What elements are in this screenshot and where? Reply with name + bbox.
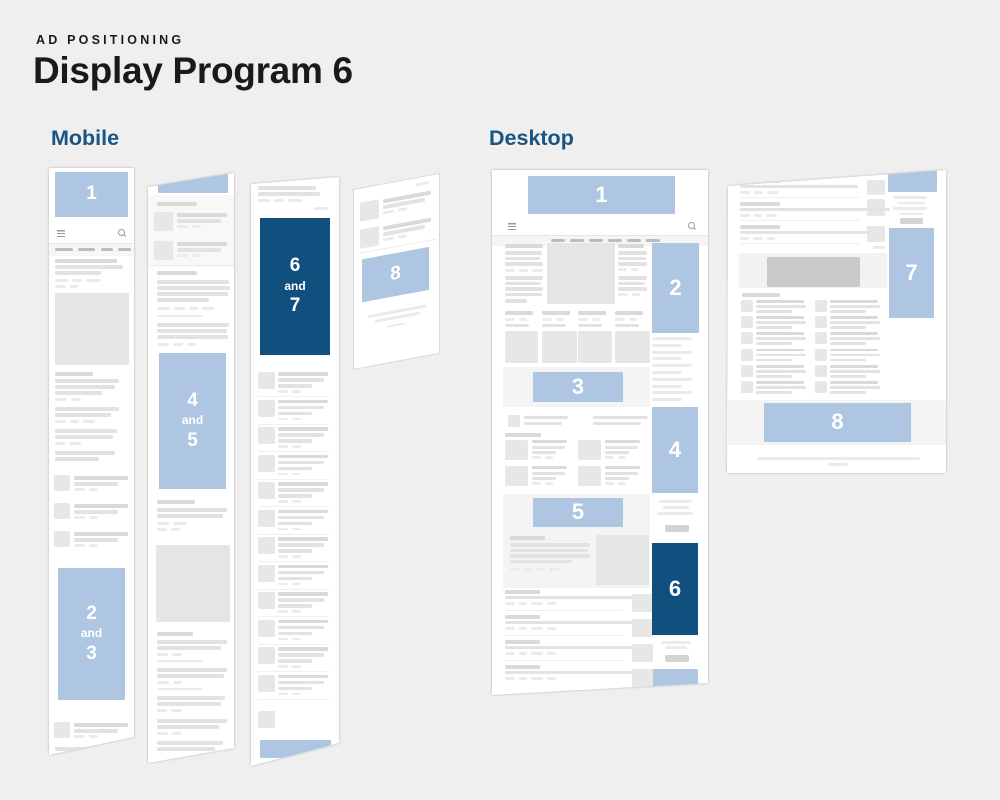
divider: [505, 635, 623, 636]
ad-number: 4: [187, 389, 198, 414]
placeholder-image: [741, 300, 753, 312]
placeholder-image: [741, 349, 753, 361]
skeleton-bar: [753, 237, 763, 240]
skeleton-bar: [171, 709, 182, 712]
placeholder-image: [632, 644, 653, 662]
placeholder-image: [258, 711, 275, 728]
skeleton-bar: [173, 681, 182, 684]
skeleton-bar: [278, 555, 288, 558]
skeleton-bar: [531, 677, 543, 680]
skeleton-bar: [593, 416, 648, 419]
skeleton-bar: [756, 310, 792, 313]
placeholder-image: [258, 537, 275, 554]
search-handle: [123, 234, 126, 237]
skeleton-bar: [652, 357, 682, 360]
divider: [258, 589, 330, 590]
skeleton-bar: [893, 196, 927, 199]
skeleton-bar: [754, 214, 762, 217]
skeleton-bar: [157, 681, 169, 684]
skeleton-bar: [652, 337, 692, 340]
skeleton-bar: [74, 510, 118, 514]
button-placeholder: [665, 655, 689, 662]
skeleton-bar: [314, 207, 328, 210]
skeleton-bar: [157, 522, 169, 525]
placeholder-image: [258, 372, 275, 389]
skeleton-bar: [830, 359, 866, 362]
skeleton-bar: [532, 472, 565, 475]
skeleton-bar: [510, 543, 590, 547]
placeholder-image: [258, 455, 275, 472]
skeleton-bar: [55, 407, 119, 411]
skeleton-bar: [55, 285, 66, 288]
skeleton-bar: [177, 213, 227, 217]
placeholder-image: [154, 212, 173, 231]
ad-slot-mobile-2-3: 2 and 3: [58, 568, 125, 700]
ad-slot-desktop-5: 5: [533, 498, 623, 527]
skeleton-bar: [55, 398, 67, 401]
divider: [505, 660, 623, 661]
skeleton-bar: [89, 544, 98, 547]
skeleton-bar: [531, 602, 543, 605]
skeleton-bar: [505, 590, 540, 594]
skeleton-bar: [157, 343, 169, 346]
skeleton-bar: [74, 544, 85, 547]
skeleton-bar: [157, 298, 209, 302]
skeleton-bar: [618, 244, 644, 248]
skeleton-bar: [278, 665, 288, 668]
skeleton-bar: [756, 342, 792, 345]
ad-slot-desktop-2: 2: [652, 243, 699, 333]
skeleton-bar: [89, 488, 98, 491]
skeleton-bar: [278, 675, 328, 679]
skeleton-bar: [652, 385, 682, 388]
skeleton-bar: [187, 343, 196, 346]
skeleton-bar: [157, 741, 223, 745]
divider: [258, 644, 330, 645]
skeleton-bar: [505, 640, 540, 644]
skeleton-bar: [756, 300, 804, 303]
ad-slot-mobile-1: 1: [55, 172, 128, 217]
placeholder-image: [542, 331, 577, 363]
skeleton-bar: [899, 213, 923, 216]
ad-number: 2: [669, 274, 681, 303]
ad-number: 6: [669, 575, 681, 604]
skeleton-bar: [547, 652, 556, 655]
skeleton-bar: [652, 344, 682, 347]
skeleton-bar: [278, 384, 312, 388]
skeleton-bar: [398, 234, 407, 238]
skeleton-bar: [615, 318, 625, 321]
skeleton-bar: [618, 287, 647, 291]
tab-dash: [55, 248, 73, 251]
skeleton-bar: [652, 351, 692, 354]
ad-positioning-diagram: AD POSITIONING Display Program 6 Mobile …: [0, 0, 1000, 800]
placeholder-image: [505, 331, 538, 363]
skeleton-bar: [292, 445, 301, 448]
skeleton-bar: [74, 516, 85, 519]
ad-number: 2: [86, 602, 97, 627]
skeleton-bar: [55, 451, 115, 455]
skeleton-bar: [505, 287, 543, 291]
divider: [258, 479, 330, 480]
skeleton-bar: [292, 610, 301, 613]
skeleton-bar: [756, 316, 804, 319]
skeleton-bar: [740, 202, 780, 206]
skeleton-bar: [593, 422, 641, 425]
skeleton-bar: [157, 632, 193, 636]
ad-slot-partial: [888, 169, 937, 192]
mobile-screen-2: 4 and 5: [147, 171, 235, 764]
skeleton-bar: [756, 354, 806, 357]
ad-number: 8: [390, 261, 401, 288]
skeleton-bar: [157, 528, 167, 531]
skeleton-bar: [505, 251, 542, 255]
skeleton-bar: [756, 349, 804, 352]
placeholder-image: [258, 647, 275, 664]
skeleton-bar: [278, 626, 324, 630]
skeleton-bar: [830, 381, 878, 384]
skeleton-bar: [505, 627, 515, 630]
skeleton-bar: [505, 596, 633, 599]
skeleton-bar: [652, 371, 682, 374]
skeleton-bar: [605, 451, 629, 454]
skeleton-bar: [292, 418, 301, 421]
skeleton-bar: [55, 265, 123, 269]
skeleton-bar: [756, 326, 792, 329]
skeleton-bar: [510, 568, 520, 571]
ad-number: and: [284, 279, 305, 295]
ad-slot-partial: [260, 740, 331, 758]
desktop-screen-2-wrap: 7 8: [726, 169, 947, 474]
skeleton-bar: [55, 435, 113, 439]
skeleton-bar: [157, 653, 168, 656]
skeleton-bar: [278, 406, 324, 410]
skeleton-bar: [542, 318, 552, 321]
skeleton-bar: [177, 254, 188, 257]
skeleton-bar: [55, 420, 66, 423]
skeleton-bar: [505, 433, 541, 437]
skeleton-bar: [157, 732, 168, 735]
skeleton-bar: [618, 257, 646, 261]
skeleton-bar: [615, 311, 643, 315]
skeleton-bar: [740, 185, 858, 188]
skeleton-bar: [830, 349, 878, 352]
ad-number: 3: [572, 373, 584, 402]
placeholder-image: [741, 381, 753, 393]
ad-slot-partial: [652, 669, 698, 695]
ad-number: and: [81, 626, 102, 642]
skeleton-bar: [278, 473, 288, 476]
skeleton-bar: [157, 688, 203, 690]
skeleton-bar: [756, 321, 806, 324]
divider: [258, 506, 330, 507]
divider: [505, 610, 623, 611]
skeleton-bar: [505, 282, 541, 286]
skeleton-bar: [157, 307, 170, 310]
skeleton-bar: [278, 537, 328, 541]
skeleton-bar: [55, 457, 99, 461]
skeleton-bar: [756, 386, 806, 389]
skeleton-bar: [830, 365, 878, 368]
skeleton-bar: [510, 549, 588, 553]
skeleton-bar: [505, 602, 515, 605]
ad-number: 8: [831, 408, 843, 437]
ad-slot-partial: [158, 171, 228, 193]
skeleton-bar: [830, 386, 880, 389]
skeleton-bar: [578, 324, 602, 327]
skeleton-bar: [55, 259, 117, 263]
divider: [258, 396, 330, 397]
mobile-screen-2-wrap: 4 and 5: [147, 171, 235, 764]
skeleton-bar: [157, 335, 228, 339]
skeleton-bar: [172, 653, 182, 656]
skeleton-bar: [663, 506, 689, 509]
skeleton-bar: [652, 398, 682, 401]
skeleton-bar: [657, 512, 693, 515]
skeleton-bar: [828, 463, 848, 466]
tab-dash: [627, 239, 641, 242]
skeleton-bar: [618, 251, 647, 255]
skeleton-bar: [157, 323, 229, 327]
skeleton-bar: [532, 456, 541, 459]
skeleton-bar: [510, 560, 572, 564]
skeleton-bar: [278, 412, 312, 416]
skeleton-bar: [278, 427, 328, 431]
skeleton-bar: [592, 318, 600, 321]
skeleton-bar: [278, 687, 312, 691]
skeleton-bar: [505, 621, 633, 624]
placeholder-image: [505, 466, 528, 486]
search-icon: [118, 229, 127, 238]
placeholder-image: [55, 293, 129, 365]
placeholder-image: [54, 475, 70, 491]
skeleton-bar: [157, 514, 223, 518]
skeleton-bar: [830, 370, 880, 373]
divider: [258, 424, 330, 425]
kicker: AD POSITIONING: [36, 33, 184, 47]
skeleton-bar: [74, 729, 118, 733]
tab-dash: [570, 239, 584, 242]
divider: [740, 243, 860, 244]
skeleton-bar: [618, 456, 626, 459]
skeleton-bar: [55, 413, 111, 417]
ad-slot-desktop-7: 7: [889, 228, 934, 318]
divider: [740, 197, 860, 198]
skeleton-bar: [278, 372, 328, 376]
skeleton-bar: [278, 378, 324, 382]
skeleton-bar: [756, 375, 792, 378]
skeleton-bar: [578, 311, 606, 315]
divider: [258, 534, 330, 535]
skeleton-bar: [55, 372, 93, 376]
skeleton-bar: [830, 337, 880, 340]
skeleton-bar: [754, 191, 763, 194]
skeleton-bar: [278, 516, 324, 520]
skeleton-bar: [632, 293, 640, 296]
skeleton-bar: [652, 391, 692, 394]
skeleton-bar: [665, 646, 687, 649]
placeholder-image: [815, 332, 827, 344]
skeleton-bar: [524, 422, 562, 425]
skeleton-bar: [505, 677, 515, 680]
placeholder-image: [632, 669, 653, 687]
skeleton-bar: [830, 321, 880, 324]
skeleton-bar: [756, 365, 804, 368]
placeholder-image: [258, 482, 275, 499]
desktop-screen-1: 1 2 3 4 5 6: [491, 169, 709, 696]
skeleton-bar: [532, 466, 567, 469]
skeleton-bar: [278, 400, 328, 404]
skeleton-bar: [278, 610, 288, 613]
skeleton-bar: [157, 696, 225, 700]
skeleton-bar: [659, 500, 692, 503]
skeleton-bar: [505, 324, 529, 327]
skeleton-bar: [532, 477, 556, 480]
hamburger-icon: [57, 230, 65, 237]
mobile-screen-4: 8: [353, 173, 440, 370]
skeleton-bar: [756, 359, 792, 362]
skeleton-bar: [74, 723, 128, 727]
skeleton-bar: [89, 735, 98, 738]
skeleton-bar: [278, 543, 324, 547]
divider: [258, 561, 330, 562]
skeleton-bar: [830, 310, 866, 313]
skeleton-bar: [756, 305, 806, 308]
placeholder-image: [815, 365, 827, 377]
skeleton-bar: [605, 466, 640, 469]
skeleton-bar: [278, 577, 312, 581]
skeleton-bar: [278, 583, 288, 586]
ad-number: 6: [290, 254, 301, 279]
skeleton-bar: [157, 271, 197, 275]
skeleton-bar: [742, 293, 780, 297]
ad-slot-desktop-1: 1: [528, 176, 675, 214]
skeleton-bar: [157, 508, 227, 512]
skeleton-bar: [897, 202, 925, 205]
skeleton-bar: [74, 538, 118, 542]
skeleton-bar: [756, 370, 806, 373]
skeleton-bar: [278, 522, 312, 526]
skeleton-bar: [157, 500, 195, 504]
mobile-section-label: Mobile: [51, 126, 119, 151]
skeleton-bar: [157, 329, 227, 333]
skeleton-bar: [618, 482, 626, 485]
placeholder-image: [54, 722, 70, 738]
skeleton-bar: [157, 702, 221, 706]
ad-number: 1: [86, 182, 97, 207]
placeholder-image: [258, 427, 275, 444]
placeholder-image: [505, 440, 528, 460]
skeleton-bar: [278, 565, 328, 569]
hamburger-icon: [508, 223, 516, 230]
skeleton-bar: [278, 571, 324, 575]
placeholder-image: [258, 592, 275, 609]
skeleton-bar: [830, 305, 880, 308]
skeleton-bar: [505, 318, 515, 321]
skeleton-bar: [157, 280, 229, 284]
navbar: [492, 216, 708, 235]
ad-slot-mobile-4-5: 4 and 5: [159, 353, 226, 489]
skeleton-bar: [605, 440, 640, 443]
placeholder-image: [578, 466, 601, 486]
button-placeholder: [665, 525, 689, 532]
skeleton-bar: [740, 208, 890, 211]
divider: [258, 671, 330, 672]
skeleton-bar: [605, 482, 614, 485]
ad-number: and: [182, 413, 203, 429]
skeleton-bar: [505, 615, 540, 619]
skeleton-bar: [532, 451, 556, 454]
skeleton-bar: [618, 293, 628, 296]
skeleton-bar: [766, 214, 777, 217]
skeleton-bar: [173, 522, 187, 525]
skeleton-bar: [545, 482, 553, 485]
tab-dash: [608, 239, 622, 242]
skeleton-bar: [70, 285, 78, 288]
skeleton-bar: [55, 753, 105, 757]
skeleton-bar: [55, 385, 115, 389]
skeleton-bar: [618, 276, 647, 280]
skeleton-bar: [629, 318, 637, 321]
skeleton-bar: [505, 665, 540, 669]
skeleton-bar: [547, 602, 556, 605]
skeleton-bar: [505, 293, 542, 297]
skeleton-bar: [756, 337, 806, 340]
skeleton-bar: [71, 398, 81, 401]
skeleton-bar: [258, 199, 270, 202]
skeleton-bar: [505, 276, 543, 280]
skeleton-bar: [652, 378, 692, 381]
mobile-screen-3: 6 and 7: [250, 175, 340, 767]
skeleton-bar: [157, 640, 227, 644]
page-title: Display Program 6: [33, 50, 353, 92]
skeleton-bar: [873, 246, 885, 249]
skeleton-bar: [157, 668, 227, 672]
skeleton-bar: [173, 343, 183, 346]
skeleton-bar: [578, 318, 588, 321]
divider: [740, 220, 860, 221]
skeleton-bar: [278, 433, 324, 437]
placeholder-image: [741, 316, 753, 328]
skeleton-bar: [192, 254, 201, 257]
skeleton-bar: [55, 747, 113, 751]
skeleton-bar: [618, 262, 647, 266]
skeleton-bar: [74, 482, 118, 486]
skeleton-bar: [189, 307, 198, 310]
skeleton-bar: [830, 342, 866, 345]
placeholder-image: [615, 331, 650, 363]
skeleton-bar: [177, 248, 221, 252]
skeleton-bar: [55, 442, 65, 445]
skeleton-bar: [157, 719, 227, 723]
skeleton-bar: [278, 681, 324, 685]
skeleton-bar: [505, 257, 540, 261]
skeleton-bar: [383, 209, 394, 214]
placeholder-image: [741, 365, 753, 377]
skeleton-bar: [524, 416, 568, 419]
skeleton-bar: [55, 271, 101, 275]
skeleton-bar: [652, 364, 692, 367]
tab-dash: [646, 239, 660, 242]
skeleton-bar: [292, 473, 301, 476]
skeleton-bar: [531, 627, 543, 630]
skeleton-bar: [278, 528, 288, 531]
ad-number: 3: [86, 642, 97, 667]
skeleton-bar: [258, 192, 320, 196]
placeholder-image: [815, 300, 827, 312]
skeleton-bar: [519, 627, 527, 630]
skeleton-bar: [416, 181, 429, 186]
